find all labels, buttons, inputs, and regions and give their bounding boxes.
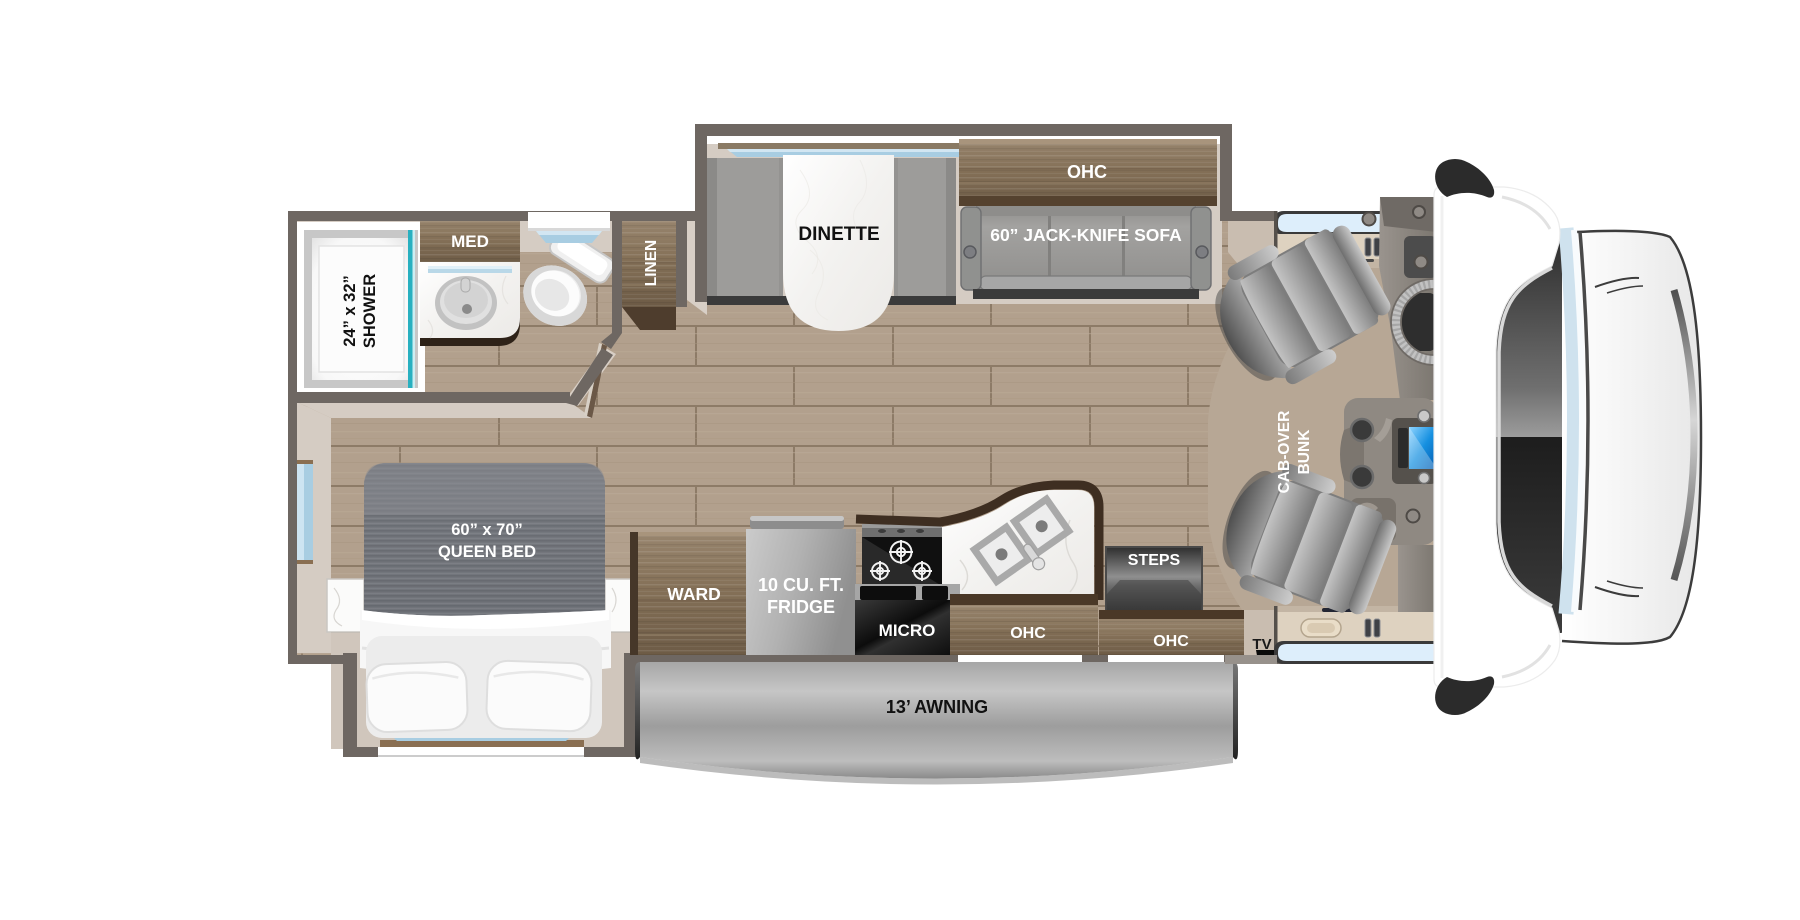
svg-text:13’ AWNING: 13’ AWNING — [886, 697, 988, 717]
svg-text:MICRO: MICRO — [879, 621, 936, 640]
svg-text:FRIDGE: FRIDGE — [767, 597, 835, 617]
svg-text:60” JACK-KNIFE SOFA: 60” JACK-KNIFE SOFA — [990, 225, 1182, 245]
svg-text:SHOWER: SHOWER — [361, 274, 379, 348]
svg-text:LINEN: LINEN — [643, 240, 660, 287]
svg-text:TV: TV — [1252, 636, 1271, 653]
svg-text:WARD: WARD — [667, 584, 720, 604]
svg-text:STEPS: STEPS — [1128, 552, 1181, 569]
svg-text:60” x 70”: 60” x 70” — [451, 521, 523, 539]
svg-text:DINETTE: DINETTE — [798, 224, 879, 245]
svg-text:10 CU. FT.: 10 CU. FT. — [758, 575, 844, 595]
svg-text:24” x 32”: 24” x 32” — [341, 275, 359, 347]
svg-text:MED: MED — [451, 232, 489, 251]
svg-text:BUNK: BUNK — [1296, 429, 1313, 475]
svg-text:QUEEN BED: QUEEN BED — [438, 543, 536, 561]
svg-text:CAB-OVER: CAB-OVER — [1276, 411, 1293, 494]
svg-text:OHC: OHC — [1153, 633, 1189, 650]
svg-text:OHC: OHC — [1067, 162, 1107, 182]
svg-text:OHC: OHC — [1010, 625, 1046, 642]
